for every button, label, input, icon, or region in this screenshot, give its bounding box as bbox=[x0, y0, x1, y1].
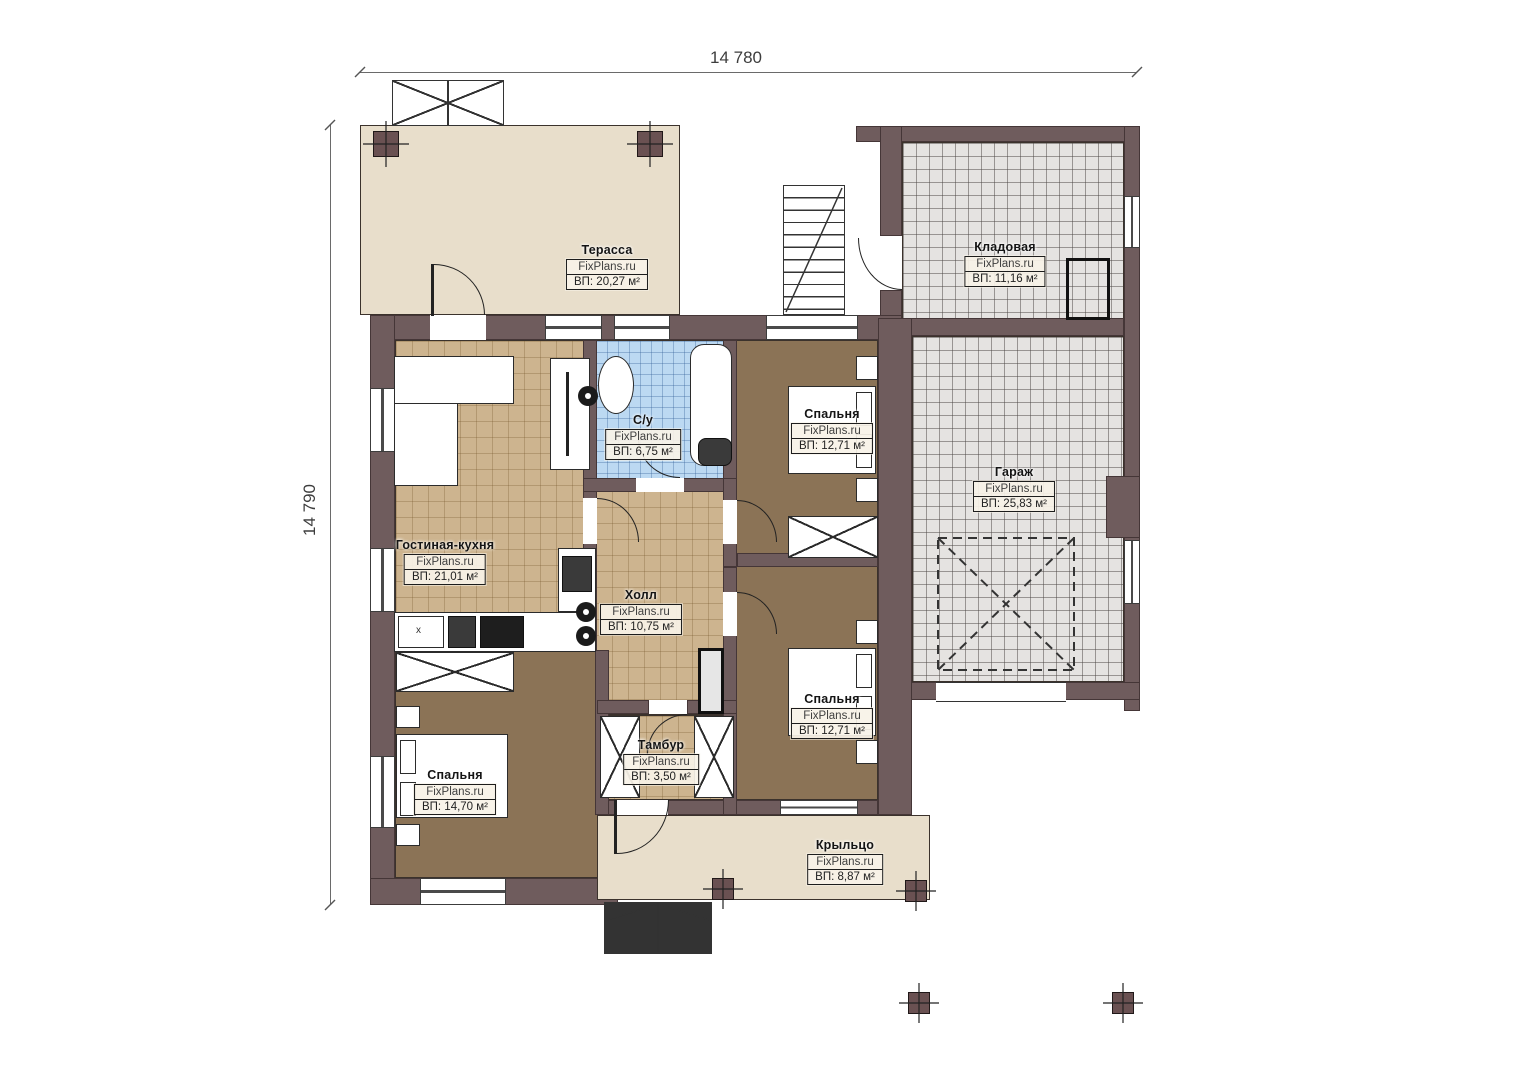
wardrobe-bedroom-top bbox=[788, 516, 878, 558]
living-hall-door-opening bbox=[583, 498, 597, 544]
garage-window bbox=[1124, 540, 1140, 604]
bathroom-fixture-dot bbox=[578, 386, 598, 406]
site-column-2 bbox=[1112, 992, 1134, 1014]
kitchen-oven bbox=[562, 556, 592, 592]
room-label-living-kitchen: Гостиная-кухня FixPlans.ru ВП: 21,01 м² bbox=[396, 538, 495, 585]
kitchen-sink-cabinet bbox=[398, 616, 444, 648]
storage-garage-divider-wall bbox=[896, 318, 1124, 336]
nightstand bbox=[856, 356, 878, 380]
nightstand bbox=[856, 478, 878, 502]
tv-stand bbox=[550, 358, 590, 470]
room-label-hall: Холл FixPlans.ru ВП: 10,75 м² bbox=[600, 588, 682, 635]
nightstand bbox=[396, 824, 420, 846]
room-label-bedroom-left: Спальня FixPlans.ru ВП: 14,70 м² bbox=[414, 768, 496, 815]
room-label-bedroom-right: Спальня FixPlans.ru ВП: 12,71 м² bbox=[791, 692, 873, 739]
appliance-dot-1 bbox=[576, 602, 596, 622]
left-window-3 bbox=[370, 756, 395, 828]
nightstand bbox=[856, 620, 878, 644]
room-label-storage: Кладовая FixPlans.ru ВП: 11,16 м² bbox=[964, 240, 1045, 287]
hall-bedroom-right-door-opening bbox=[723, 592, 737, 636]
hall-vestibule-wall-left bbox=[597, 700, 649, 714]
top-window-2 bbox=[614, 315, 670, 340]
garage-chimney-block bbox=[1106, 476, 1140, 538]
bottom-window-bedroom-left bbox=[420, 878, 506, 905]
left-window-2 bbox=[370, 548, 395, 612]
wardrobe-bedroom-left bbox=[396, 652, 514, 692]
sofa-horizontal bbox=[394, 356, 514, 404]
porch-column-left bbox=[712, 878, 734, 900]
terrace-column-right bbox=[637, 131, 663, 157]
room-label-bathroom: С/у FixPlans.ru ВП: 6,75 м² bbox=[605, 413, 681, 460]
room-label-terrace: Терасса FixPlans.ru ВП: 20,27 м² bbox=[566, 243, 648, 290]
hall-cabinet bbox=[698, 648, 724, 714]
room-label-vestibule: Тамбур FixPlans.ru ВП: 3,50 м² bbox=[623, 738, 699, 785]
dimension-top-label: 14 780 bbox=[710, 48, 762, 68]
room-label-garage: Гараж FixPlans.ru ВП: 25,83 м² bbox=[973, 465, 1055, 512]
kitchen-sink-mark: х bbox=[416, 625, 421, 636]
room-label-bedroom-top: Спальня FixPlans.ru ВП: 12,71 м² bbox=[791, 407, 873, 454]
site-column-1 bbox=[908, 992, 930, 1014]
porch-column-right bbox=[905, 880, 927, 902]
vestibule-closet-right bbox=[694, 716, 734, 798]
tv-icon bbox=[566, 372, 569, 456]
hall-bathroom-door-opening bbox=[636, 478, 684, 492]
exterior-stairs bbox=[783, 185, 845, 315]
porch-steps bbox=[604, 902, 712, 954]
nightstand bbox=[856, 740, 878, 764]
storage-shaft bbox=[1066, 258, 1110, 320]
dimension-left-label: 14 790 bbox=[300, 484, 320, 536]
washbasin bbox=[598, 356, 634, 414]
room-label-porch: Крыльцо FixPlans.ru ВП: 8,87 м² bbox=[807, 838, 883, 885]
kitchen-sink bbox=[448, 616, 476, 648]
top-window-3 bbox=[766, 315, 858, 340]
hall-vestibule-door-opening bbox=[649, 700, 687, 714]
nightstand bbox=[396, 706, 420, 728]
hall-bedroom-top-door-opening bbox=[723, 500, 737, 544]
left-window-1 bbox=[370, 388, 395, 452]
storage-left-wall-upper bbox=[880, 126, 902, 236]
house-right-wall bbox=[878, 318, 912, 815]
storage-window bbox=[1124, 196, 1140, 248]
porch-window-bedroom-right bbox=[780, 800, 858, 815]
dimension-line-top bbox=[360, 72, 1137, 73]
terrace-column-left bbox=[373, 131, 399, 157]
top-window-1 bbox=[545, 315, 602, 340]
storage-door-arc bbox=[858, 238, 902, 290]
toilet bbox=[698, 438, 732, 466]
terrace-door-opening bbox=[430, 315, 486, 340]
garage-door-opening bbox=[936, 682, 1066, 702]
kitchen-stove bbox=[480, 616, 524, 648]
pergola bbox=[392, 80, 504, 126]
appliance-dot-2 bbox=[576, 626, 596, 646]
pillow bbox=[856, 654, 872, 688]
floor-plan-canvas: 14 780 14 790 bbox=[0, 0, 1528, 1080]
dimension-line-left bbox=[330, 125, 331, 905]
